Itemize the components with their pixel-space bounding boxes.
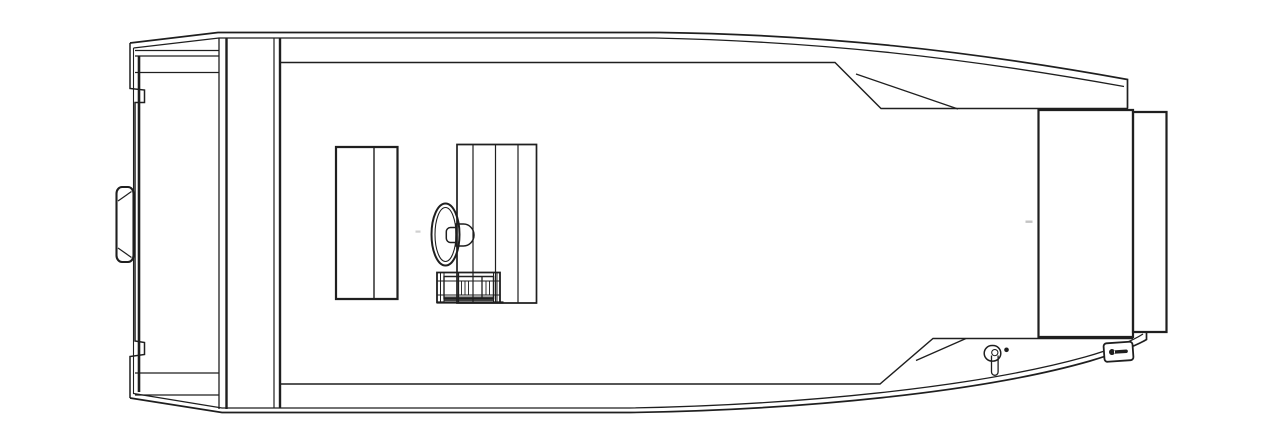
bow-light-dot	[1004, 348, 1009, 353]
stern-bracket-chamfers	[118, 192, 132, 258]
stern-port-edge	[130, 43, 145, 398]
hull-bottom-outer	[130, 332, 1147, 413]
cockpit-top-corner-line	[856, 74, 958, 109]
boat-plan-view-svg	[0, 0, 1280, 448]
port-bench-seat	[336, 147, 398, 299]
throttle-ticks	[462, 282, 490, 295]
stern-bracket	[117, 187, 134, 262]
cockpit-coaming-bottom	[280, 339, 1133, 385]
bow-step-panel	[1133, 112, 1167, 332]
bow-casting-deck	[1039, 110, 1134, 337]
steering-wheel-rim-inner	[435, 208, 456, 262]
deck-seam-artifact-cockpit	[416, 231, 421, 233]
transom-bottom-step-lines	[135, 373, 219, 395]
helm-console-panel-lines	[473, 145, 518, 304]
bow-light-stem-cap	[992, 350, 998, 356]
throttle-shadow-strip	[444, 297, 494, 302]
bow-light-stem	[992, 356, 999, 376]
transom-top-step-lines	[135, 51, 219, 73]
boat-linework	[117, 33, 1167, 413]
deck-seam-artifact-bow	[1026, 221, 1033, 223]
cockpit-bottom-corner-line	[916, 339, 966, 361]
cockpit-coaming-top	[280, 63, 1128, 109]
drawing-canvas	[0, 0, 1280, 448]
